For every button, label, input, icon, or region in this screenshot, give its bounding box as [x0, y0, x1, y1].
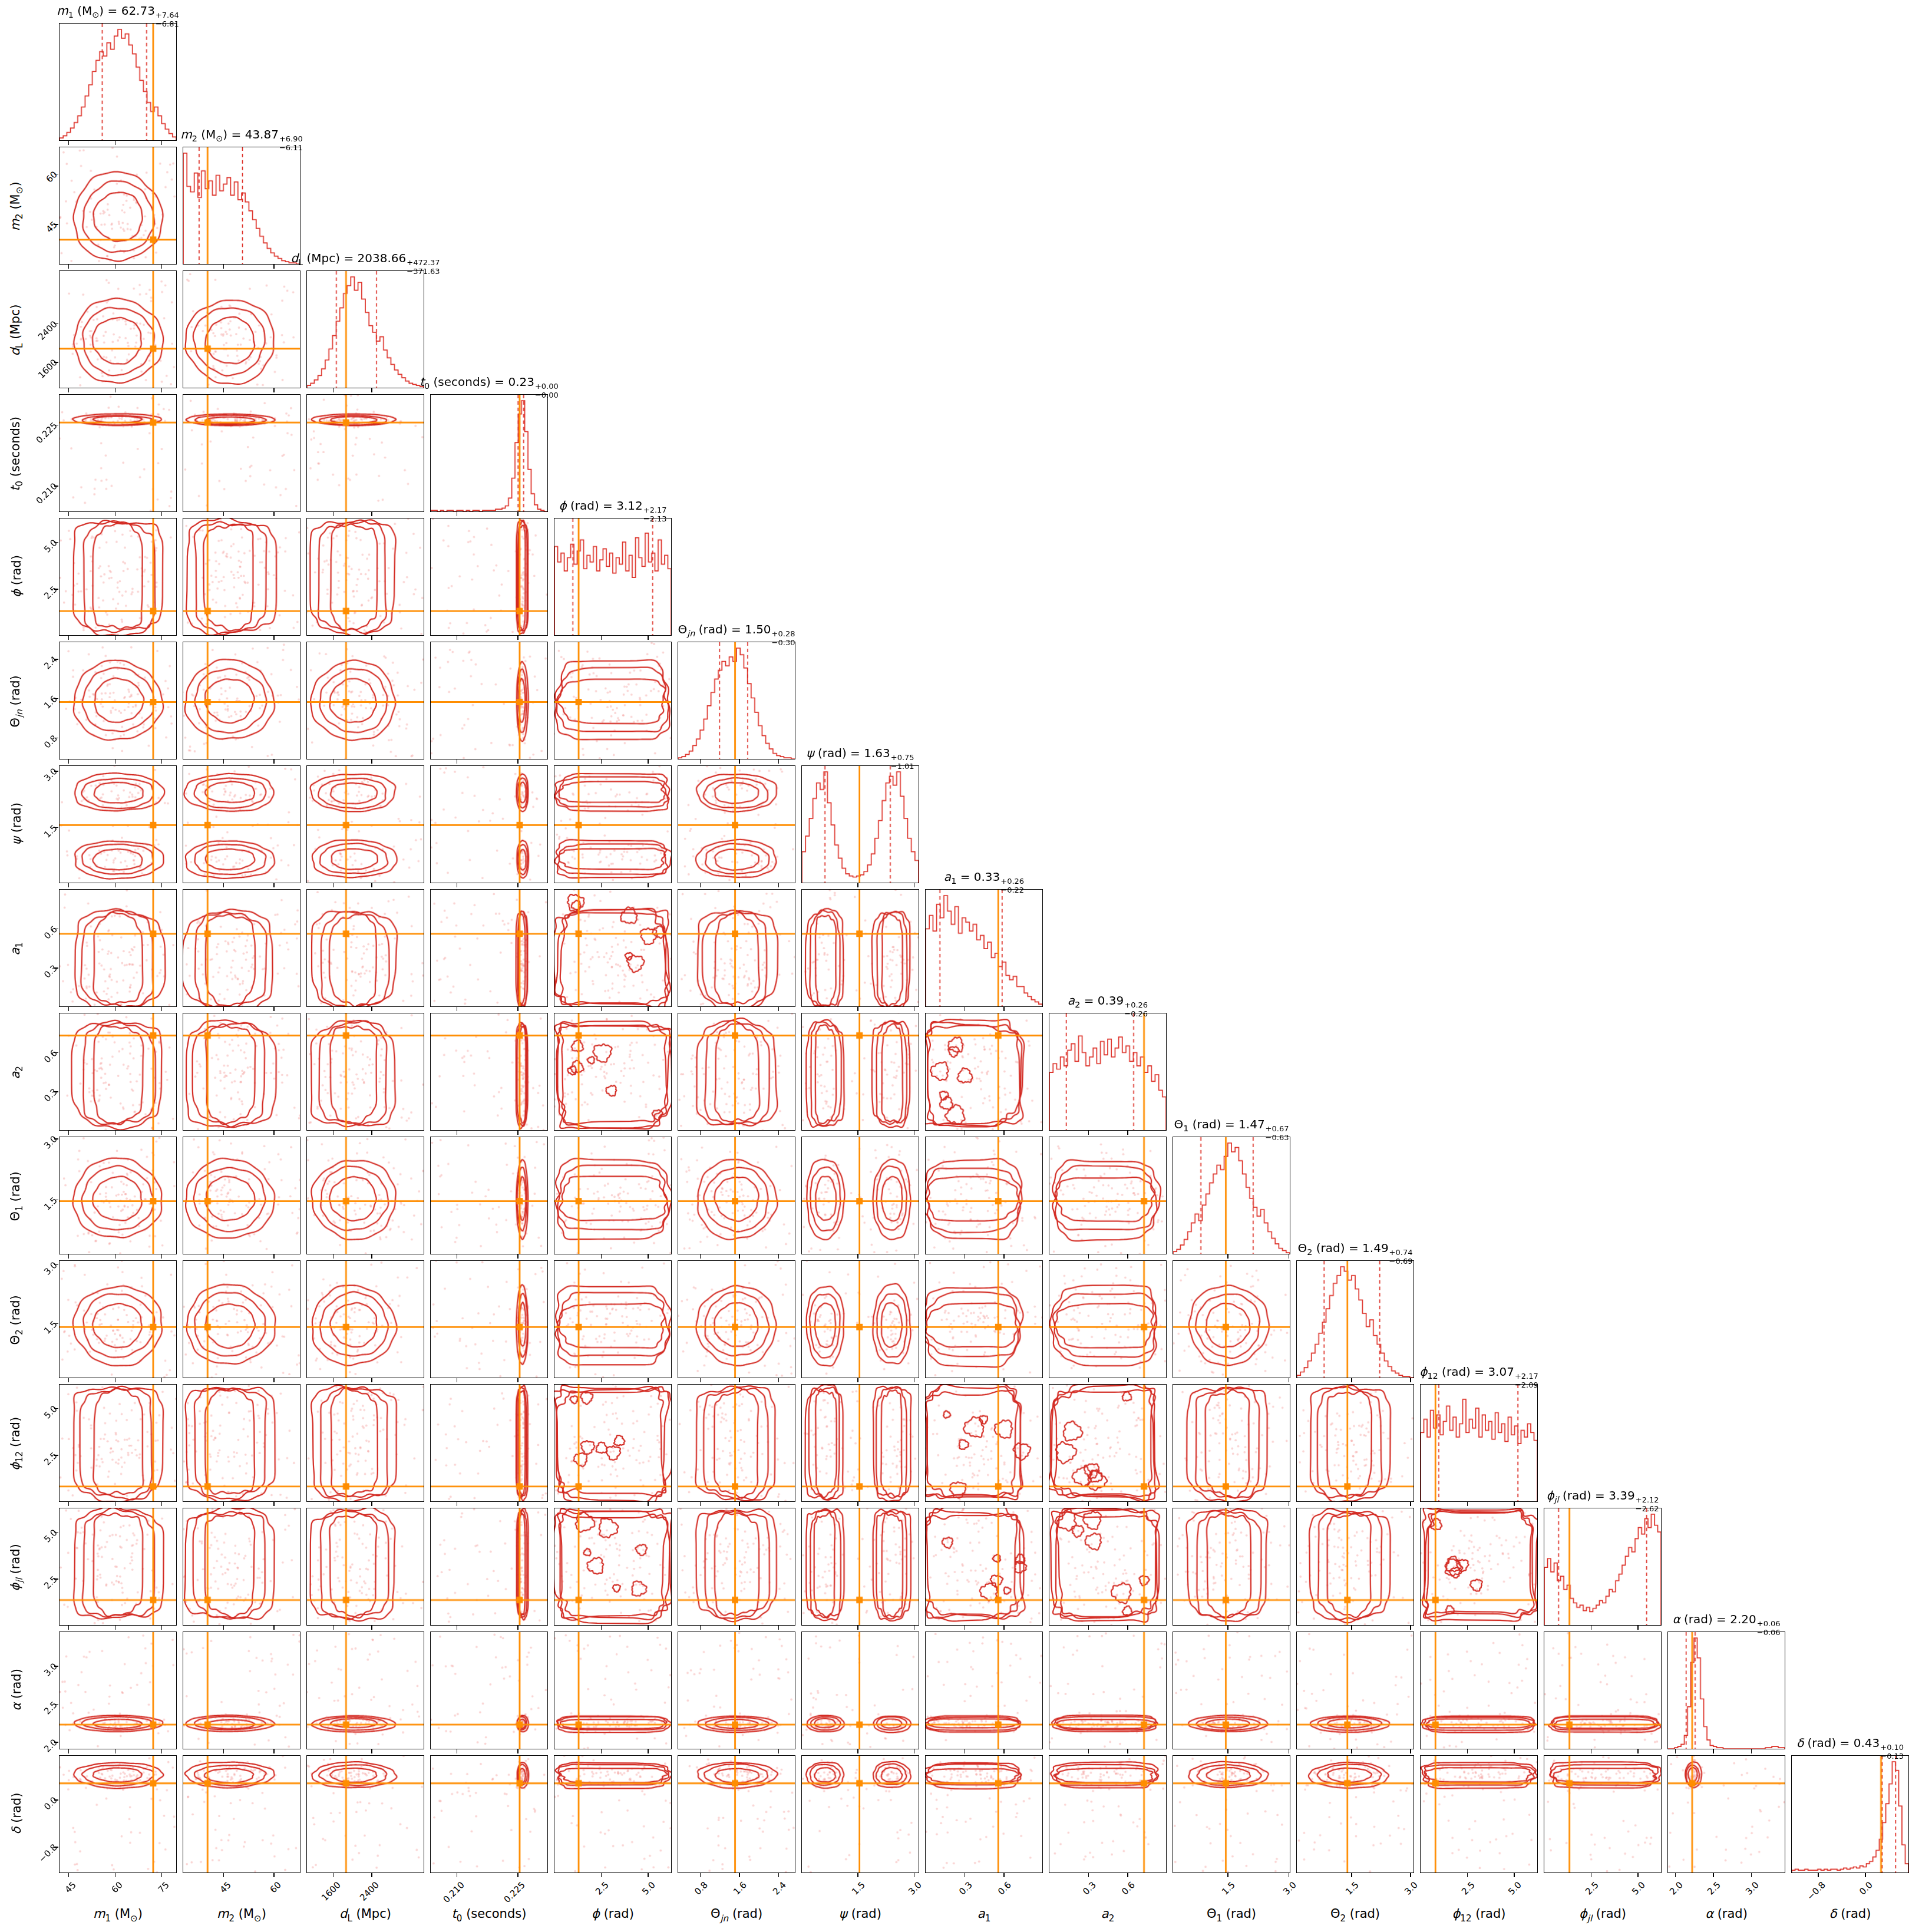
panel-alpha-vs-phi12-canvas: [1421, 1632, 1537, 1749]
title-plus-error: +0.06: [1757, 1620, 1781, 1629]
panel-delta-vs-t0: [430, 1755, 548, 1873]
panel-phi12-vs-theta1-canvas: [1173, 1385, 1290, 1501]
hist-panel-theta_jn: [678, 642, 795, 759]
x-tick-mark: [273, 1007, 275, 1011]
x-tick-mark: [1003, 1873, 1005, 1877]
panel-a2-vs-m1-canvas: [60, 1013, 176, 1130]
title-median: 0.43: [1854, 1736, 1880, 1750]
panel-psi-vs-theta_jn-canvas: [678, 766, 795, 883]
y-axis-label-a2: a2: [8, 1013, 25, 1131]
label-part: 1: [985, 1913, 991, 1924]
panel-theta1-vs-m2: [183, 1137, 300, 1254]
x-tick-mark: [517, 1254, 518, 1259]
x-tick-mark: [1637, 1873, 1639, 1877]
title-minus-error: −0.26: [1124, 1010, 1148, 1019]
label-part: m: [180, 127, 191, 141]
title-equals: =: [1471, 1365, 1488, 1379]
label-part: 1: [14, 942, 25, 948]
x-tick-mark: [914, 1626, 915, 1630]
panel-delta-vs-a1: [925, 1755, 1043, 1873]
x-tick-mark: [223, 1749, 224, 1753]
x-tick-mark: [457, 1502, 458, 1506]
title-minus-error: −6.11: [279, 144, 303, 153]
x-tick-mark: [371, 1502, 372, 1506]
panel-a2-vs-a1-canvas: [926, 1013, 1042, 1130]
x-tick-mark: [1127, 1502, 1128, 1506]
x-tick-mark: [273, 1378, 275, 1382]
title-median: 1.63: [864, 746, 890, 760]
title-median: 1.49: [1362, 1241, 1389, 1255]
x-tick-mark: [1003, 1749, 1005, 1753]
title-plus-error: +472.37: [407, 259, 440, 267]
x-tick-mark: [115, 1254, 116, 1259]
title-errors: +2.17−2.09: [1515, 1372, 1538, 1389]
param-title-t0: t0 (seconds) = 0.23+0.00−0.00: [312, 375, 666, 400]
x-tick-mark: [1410, 1626, 1411, 1630]
title-median: 62.73: [121, 4, 155, 18]
x-tick-mark: [115, 1749, 116, 1753]
hist-panel-phi_jl-canvas: [1544, 1508, 1661, 1625]
x-tick-mark: [161, 1378, 163, 1382]
panel-phi_jl-vs-phi12-canvas: [1421, 1508, 1537, 1625]
x-tick-mark: [700, 1626, 701, 1630]
x-tick-mark: [333, 1007, 334, 1011]
x-tick-mark: [333, 1749, 334, 1753]
x-tick-mark: [517, 1626, 518, 1630]
param-title-delta: δ (rad) = 0.43+0.10−0.13: [1673, 1736, 1932, 1761]
x-tick-mark: [371, 1626, 372, 1630]
x-tick-label-theta1-1: 3.0: [1237, 1880, 1299, 1932]
x-tick-mark: [1227, 1873, 1228, 1877]
panel-m2-vs-m1: [59, 147, 177, 265]
x-tick-label-phi-0: 2.5: [549, 1880, 611, 1932]
x-tick-mark: [778, 1749, 780, 1753]
param-title-theta2: Θ2 (rad) = 1.49+0.74−0.69: [1178, 1241, 1532, 1266]
param-title-alpha: α (rad) = 2.20+0.06−0.06: [1550, 1612, 1903, 1637]
title-minus-error: −6.81: [156, 20, 179, 29]
x-tick-mark: [1467, 1873, 1468, 1877]
x-tick-mark: [68, 512, 70, 516]
label-part: ): [99, 4, 104, 18]
label-part: 1: [14, 1206, 25, 1211]
x-tick-mark: [1351, 1873, 1352, 1877]
panel-phi_jl-vs-theta2: [1296, 1508, 1414, 1626]
x-tick-label-t0-1: 0.225: [465, 1880, 527, 1932]
panel-alpha-vs-t0: [430, 1632, 548, 1749]
title-equals: =: [340, 251, 357, 265]
panel-phi12-vs-a1-canvas: [926, 1385, 1042, 1501]
label-part: 2: [14, 1066, 25, 1072]
x-tick-mark: [68, 759, 70, 764]
panel-theta2-vs-m1-canvas: [60, 1261, 176, 1378]
x-tick-mark: [648, 1749, 649, 1753]
title-equals: =: [1080, 993, 1097, 1008]
panel-theta_jn-vs-m2: [183, 642, 300, 759]
panel-alpha-vs-phi_jl-canvas: [1544, 1632, 1661, 1749]
label-part: 2: [1075, 1000, 1080, 1009]
x-tick-label-m2-0: 45: [171, 1880, 233, 1932]
panel-delta-vs-m1: [59, 1755, 177, 1873]
hist-panel-a2: [1049, 1013, 1167, 1131]
x-tick-mark: [161, 1626, 163, 1630]
x-tick-mark: [223, 883, 224, 887]
label-part: jl: [1587, 1913, 1592, 1924]
panel-phi_jl-vs-m1-canvas: [60, 1508, 176, 1625]
label-part: ϕ: [592, 1907, 600, 1921]
label-part: ): [223, 127, 227, 141]
title-minus-error: −2.62: [1636, 1505, 1659, 1514]
x-tick-mark: [739, 1502, 740, 1506]
panel-alpha-vs-phi-canvas: [554, 1632, 671, 1749]
x-tick-mark: [161, 1007, 163, 1011]
x-tick-mark: [857, 1873, 858, 1877]
x-tick-mark: [739, 1873, 740, 1877]
x-tick-mark: [161, 265, 163, 269]
x-tick-mark: [914, 1749, 915, 1753]
label-part: Θ: [678, 622, 688, 636]
label-part: (rad): [1559, 1488, 1591, 1502]
title-errors: +0.28−0.30: [772, 630, 795, 647]
title-plus-error: +6.90: [279, 135, 303, 144]
panel-a2-vs-dL: [306, 1013, 424, 1131]
hist-panel-phi_jl: [1544, 1508, 1662, 1626]
hist-panel-theta2: [1296, 1260, 1414, 1378]
x-tick-mark: [1227, 1626, 1228, 1630]
panel-theta_jn-vs-phi-canvas: [554, 642, 671, 759]
panel-a2-vs-m2: [183, 1013, 300, 1131]
label-part: 1: [68, 10, 74, 19]
label-part: (M: [197, 127, 216, 141]
x-tick-mark: [857, 1749, 858, 1753]
panel-phi_jl-vs-m2-canvas: [183, 1508, 300, 1625]
panel-delta-vs-m1-canvas: [60, 1756, 176, 1872]
hist-panel-t0-canvas: [431, 395, 547, 511]
x-tick-mark: [273, 759, 275, 764]
panel-a2-vs-theta_jn-canvas: [678, 1013, 795, 1130]
panel-delta-vs-dL: [306, 1755, 424, 1873]
x-tick-mark: [223, 1131, 224, 1135]
panel-phi12-vs-phi: [554, 1384, 672, 1502]
title-median: 3.07: [1488, 1365, 1514, 1379]
panel-a1-vs-m1-canvas: [60, 890, 176, 1006]
label-part: (M: [74, 4, 92, 18]
x-tick-mark: [648, 883, 649, 887]
x-tick-mark: [457, 1254, 458, 1259]
label-part: ⊙: [14, 187, 25, 194]
x-tick-mark: [1410, 1502, 1411, 1506]
panel-theta2-vs-psi-canvas: [802, 1261, 919, 1378]
panel-delta-vs-dL-canvas: [307, 1756, 424, 1872]
title-errors: +2.17−2.13: [643, 506, 667, 523]
x-tick-mark: [333, 1378, 334, 1382]
panel-delta-vs-phi12-canvas: [1421, 1756, 1537, 1872]
title-plus-error: +0.28: [772, 630, 795, 639]
panel-theta1-vs-dL-canvas: [307, 1137, 424, 1254]
title-errors: +2.12−2.62: [1636, 1496, 1659, 1513]
hist-panel-dL-canvas: [307, 271, 424, 388]
x-tick-mark: [778, 1626, 780, 1630]
panel-psi-vs-dL-canvas: [307, 766, 424, 883]
x-tick-mark: [778, 1007, 780, 1011]
title-errors: +6.90−6.11: [279, 135, 303, 152]
x-tick-mark: [700, 1131, 701, 1135]
x-tick-mark: [1865, 1873, 1866, 1877]
panel-phi-vs-t0-canvas: [431, 518, 547, 635]
hist-panel-phi12: [1420, 1384, 1538, 1502]
title-minus-error: −0.30: [772, 639, 795, 648]
title-equals: =: [956, 870, 973, 884]
panel-theta2-vs-t0: [430, 1260, 548, 1378]
panel-theta2-vs-a1: [925, 1260, 1043, 1378]
panel-a1-vs-dL-canvas: [307, 890, 424, 1006]
x-tick-mark: [1003, 1626, 1005, 1630]
panel-psi-vs-phi: [554, 765, 672, 883]
title-equals: =: [1713, 1612, 1730, 1626]
x-tick-mark: [223, 1007, 224, 1011]
label-part: 2: [1340, 1913, 1346, 1924]
label-part: (rad): [695, 622, 727, 636]
x-tick-mark: [965, 1749, 966, 1753]
label-part: Θ: [1298, 1241, 1307, 1255]
panel-alpha-vs-phi_jl: [1544, 1632, 1662, 1749]
x-tick-mark: [517, 636, 518, 640]
label-part: ϕ: [1546, 1488, 1554, 1502]
x-tick-mark: [68, 388, 70, 392]
x-tick-mark: [648, 1378, 649, 1382]
panel-dL-vs-m2-canvas: [183, 271, 300, 388]
x-tick-mark: [371, 1378, 372, 1382]
x-tick-mark: [161, 1502, 163, 1506]
label-part: jl: [1554, 1495, 1559, 1504]
label-part: 12: [1427, 1371, 1438, 1381]
x-tick-label-delta-0: −0.8: [1766, 1880, 1828, 1932]
panel-theta_jn-vs-t0-canvas: [431, 642, 547, 759]
x-tick-mark: [601, 1502, 602, 1506]
x-tick-mark: [223, 1502, 224, 1506]
x-tick-mark: [1127, 1873, 1128, 1877]
x-tick-mark: [371, 636, 372, 640]
x-tick-mark: [1227, 1749, 1228, 1753]
label-part: ⊙: [92, 10, 99, 19]
y-axis-label-a1: a1: [8, 890, 25, 1008]
panel-t0-vs-m2-canvas: [183, 395, 300, 511]
title-errors: +0.26−0.22: [1000, 877, 1024, 894]
panel-phi12-vs-t0-canvas: [431, 1385, 547, 1501]
param-title-theta_jn: Θjn (rad) = 1.50+0.28−0.30: [560, 622, 913, 648]
x-tick-mark: [333, 1626, 334, 1630]
panel-a1-vs-phi: [554, 889, 672, 1007]
panel-theta1-vs-phi: [554, 1137, 672, 1254]
panel-t0-vs-dL: [306, 394, 424, 512]
panel-phi12-vs-t0: [430, 1384, 548, 1502]
hist-panel-psi-canvas: [802, 766, 919, 883]
x-tick-mark: [739, 1007, 740, 1011]
panel-t0-vs-m2: [183, 394, 300, 512]
x-tick-mark: [115, 1626, 116, 1630]
label-part: (seconds): [430, 375, 491, 389]
x-tick-label-psi-0: 1.5: [806, 1880, 868, 1932]
title-equals: =: [1221, 1117, 1239, 1131]
x-tick-mark: [457, 636, 458, 640]
panel-theta2-vs-m2-canvas: [183, 1261, 300, 1378]
x-tick-mark: [857, 1502, 858, 1506]
panel-theta1-vs-psi-canvas: [802, 1137, 919, 1254]
panel-a2-vs-theta_jn: [678, 1013, 795, 1131]
panel-phi12-vs-m1-canvas: [60, 1385, 176, 1501]
panel-phi_jl-vs-phi: [554, 1508, 672, 1626]
x-tick-mark: [965, 1254, 966, 1259]
x-tick-mark: [1514, 1873, 1515, 1877]
title-equals: =: [1345, 1241, 1362, 1255]
panel-phi-vs-t0: [430, 518, 548, 636]
panel-theta1-vs-a2-canvas: [1049, 1137, 1166, 1254]
panel-alpha-vs-m1-canvas: [60, 1632, 176, 1749]
x-tick-mark: [161, 1749, 163, 1753]
panel-alpha-vs-t0-canvas: [431, 1632, 547, 1749]
x-tick-mark: [739, 1131, 740, 1135]
x-tick-mark: [457, 883, 458, 887]
panel-delta-vs-a2: [1049, 1755, 1167, 1873]
panel-t0-vs-dL-canvas: [307, 395, 424, 511]
title-median: 0.39: [1098, 993, 1124, 1008]
panel-a1-vs-m1: [59, 889, 177, 1007]
panel-theta2-vs-phi: [554, 1260, 672, 1378]
panel-alpha-vs-theta2-canvas: [1297, 1632, 1414, 1749]
panel-theta_jn-vs-m2-canvas: [183, 642, 300, 759]
x-tick-mark: [1127, 1626, 1128, 1630]
x-tick-mark: [223, 1254, 224, 1259]
panel-phi_jl-vs-phi12: [1420, 1508, 1538, 1626]
panel-phi12-vs-psi: [801, 1384, 919, 1502]
x-tick-mark: [273, 1254, 275, 1259]
x-tick-mark: [333, 1254, 334, 1259]
x-tick-mark: [1088, 1873, 1089, 1877]
panel-a2-vs-m2-canvas: [183, 1013, 300, 1130]
panel-phi-vs-m2: [183, 518, 300, 636]
x-tick-mark: [700, 1254, 701, 1259]
label-part: 2: [1109, 1913, 1115, 1924]
x-tick-mark: [68, 1502, 70, 1506]
title-minus-error: −2.13: [643, 515, 667, 524]
x-tick-mark: [457, 759, 458, 764]
label-part: jn: [14, 709, 25, 718]
x-tick-mark: [68, 1749, 70, 1753]
panel-phi-vs-m1-canvas: [60, 518, 176, 635]
x-tick-mark: [517, 1749, 518, 1753]
panel-m2-vs-m1-canvas: [60, 147, 176, 264]
x-tick-mark: [965, 1502, 966, 1506]
panel-a1-vs-psi-canvas: [802, 890, 919, 1006]
title-equals: =: [104, 4, 121, 18]
panel-alpha-vs-m2: [183, 1632, 300, 1749]
x-tick-mark: [648, 1873, 649, 1877]
x-tick-mark: [1467, 1749, 1468, 1753]
x-tick-mark: [1088, 1254, 1089, 1259]
label-part: 2: [192, 134, 197, 143]
x-tick-mark: [161, 1254, 163, 1259]
x-tick-mark: [517, 883, 518, 887]
title-plus-error: +2.12: [1636, 1496, 1659, 1505]
title-minus-error: −0.22: [1000, 886, 1024, 895]
label-part: m: [57, 4, 68, 18]
panel-theta1-vs-phi-canvas: [554, 1137, 671, 1254]
x-tick-mark: [601, 1131, 602, 1135]
x-tick-mark: [914, 1378, 915, 1382]
label-part: 1: [1217, 1913, 1223, 1924]
panel-delta-vs-a2-canvas: [1049, 1756, 1166, 1872]
x-tick-mark: [700, 1873, 701, 1877]
x-tick-mark: [161, 636, 163, 640]
param-title-m1: m1 (M⊙) = 62.73+7.64−6.81: [0, 4, 295, 29]
panel-delta-vs-a1-canvas: [926, 1756, 1042, 1872]
x-tick-mark: [371, 1131, 372, 1135]
panel-phi_jl-vs-m2: [183, 1508, 300, 1626]
x-tick-mark: [457, 1873, 458, 1877]
x-tick-mark: [273, 636, 275, 640]
title-minus-error: −0.69: [1389, 1257, 1413, 1266]
panel-alpha-vs-psi: [801, 1632, 919, 1749]
x-tick-mark: [68, 1007, 70, 1011]
x-tick-mark: [1675, 1873, 1676, 1877]
panel-theta1-vs-a1-canvas: [926, 1137, 1042, 1254]
x-tick-mark: [115, 388, 116, 392]
label-part: (Mpc): [303, 251, 340, 265]
panel-a2-vs-phi: [554, 1013, 672, 1131]
panel-theta1-vs-t0-canvas: [431, 1137, 547, 1254]
panel-dL-vs-m1: [59, 270, 177, 388]
x-tick-mark: [857, 1254, 858, 1259]
hist-panel-alpha: [1667, 1632, 1785, 1749]
panel-a2-vs-dL-canvas: [307, 1013, 424, 1130]
label-part: δ: [1796, 1736, 1804, 1750]
panel-phi12-vs-dL-canvas: [307, 1385, 424, 1501]
title-plus-error: +0.75: [891, 754, 914, 762]
x-tick-mark: [1289, 1626, 1290, 1630]
title-minus-error: −371.63: [407, 267, 440, 276]
panel-theta2-vs-theta_jn: [678, 1260, 795, 1378]
panel-a2-vs-phi-canvas: [554, 1013, 671, 1130]
param-title-phi12: ϕ12 (rad) = 3.07+2.17−2.09: [1302, 1365, 1656, 1390]
panel-theta2-vs-dL: [306, 1260, 424, 1378]
x-tick-mark: [601, 1254, 602, 1259]
x-tick-mark: [1003, 1254, 1005, 1259]
x-tick-mark: [778, 1378, 780, 1382]
panel-a1-vs-phi-canvas: [554, 890, 671, 1006]
label-part: 1: [951, 876, 956, 886]
panel-psi-vs-dL: [306, 765, 424, 883]
panel-theta1-vs-theta_jn: [678, 1137, 795, 1254]
x-tick-mark: [68, 883, 70, 887]
title-minus-error: −0.13: [1880, 1752, 1904, 1761]
label-part: (rad): [1804, 1736, 1836, 1750]
label-part: Θ: [8, 1335, 22, 1345]
panel-phi12-vs-a2-canvas: [1049, 1385, 1166, 1501]
panel-alpha-vs-a1-canvas: [926, 1632, 1042, 1749]
x-tick-mark: [223, 636, 224, 640]
panel-phi12-vs-theta2-canvas: [1297, 1385, 1414, 1501]
panel-alpha-vs-a2-canvas: [1049, 1632, 1166, 1749]
title-errors: +0.74−0.69: [1389, 1249, 1413, 1266]
x-tick-mark: [115, 883, 116, 887]
x-tick-mark: [601, 1626, 602, 1630]
label-part: jn: [720, 1913, 728, 1924]
x-tick-mark: [965, 1378, 966, 1382]
x-tick-mark: [68, 1873, 70, 1877]
title-median: 43.87: [245, 127, 279, 141]
x-tick-mark: [1410, 1749, 1411, 1753]
panel-delta-vs-phi_jl: [1544, 1755, 1662, 1873]
x-tick-mark: [1514, 1626, 1515, 1630]
